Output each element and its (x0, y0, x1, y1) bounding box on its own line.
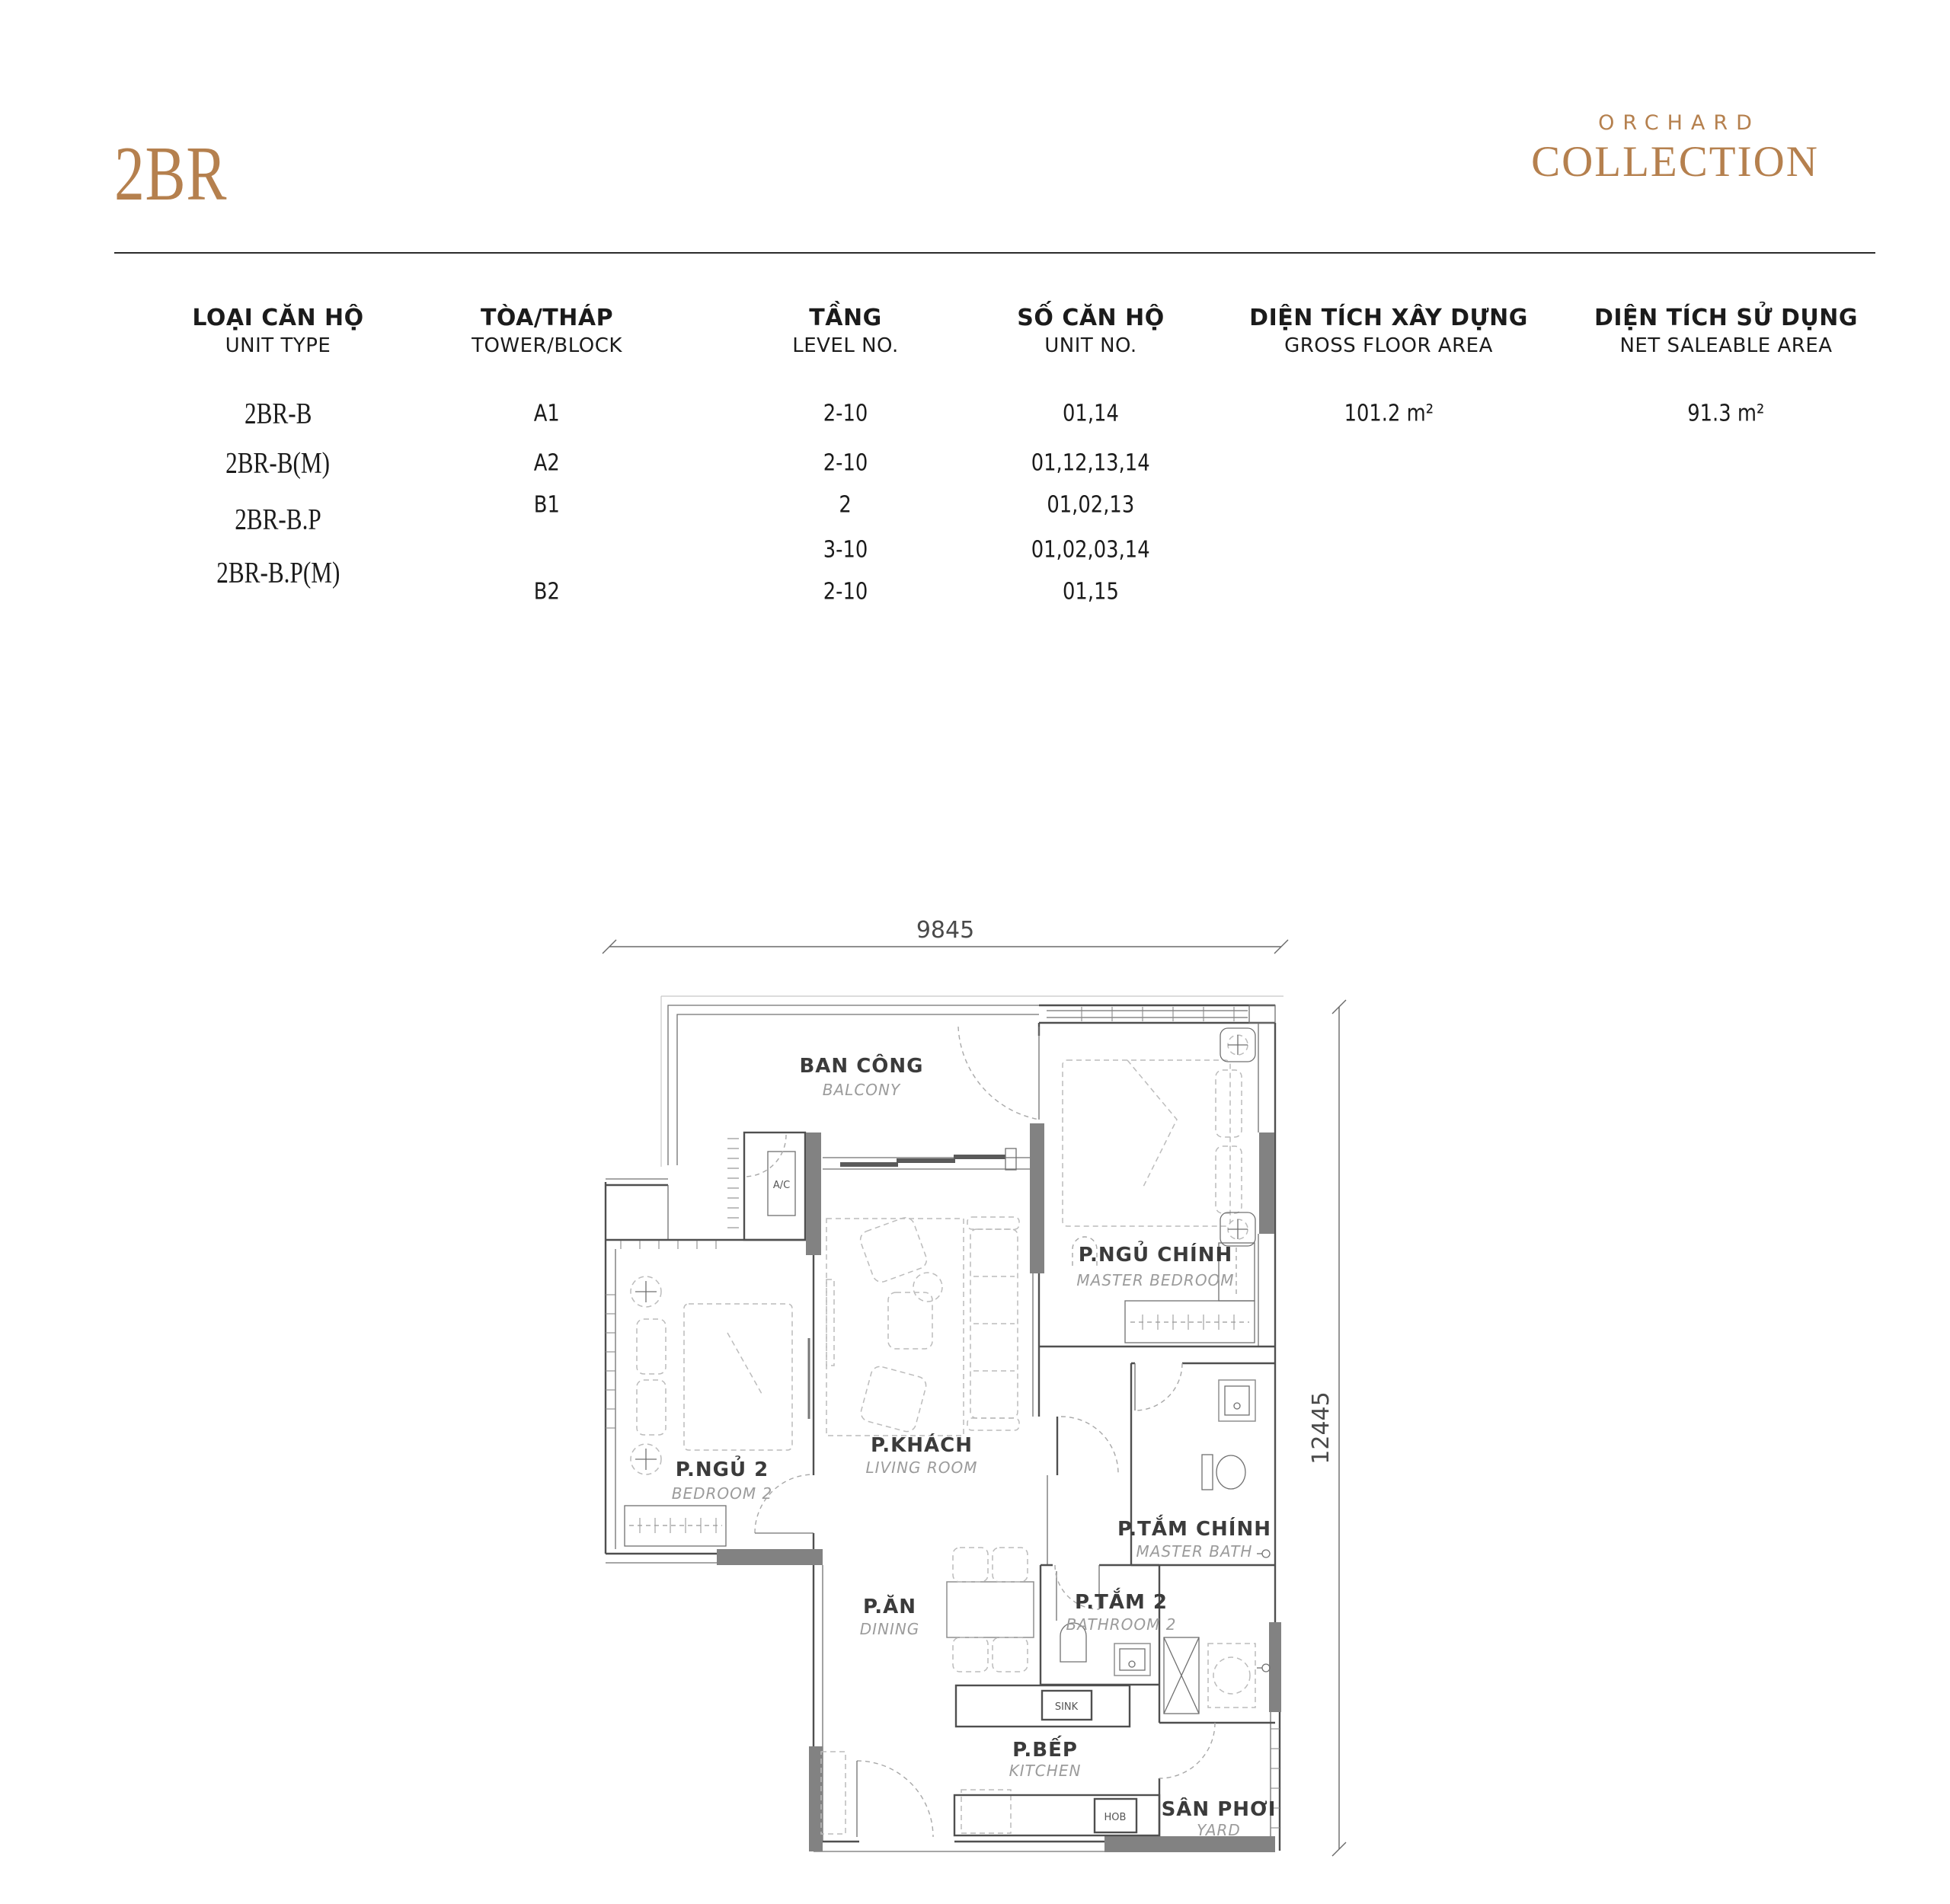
dimension-width-label: 9845 (916, 917, 974, 944)
room-living-en: LIVING ROOM (865, 1458, 977, 1477)
room-kitchen-en: KITCHEN (1009, 1762, 1082, 1780)
room-balcony-vi: BAN CÔNG (799, 1053, 923, 1078)
col-header-vi: DIỆN TÍCH XÂY DỰNG (1198, 305, 1579, 331)
hob-label: HOB (1104, 1812, 1127, 1823)
furniture (631, 1028, 1255, 1834)
room-master-bedroom-vi: P.NGỦ CHÍNH (1079, 1239, 1232, 1267)
nsa-cell: 91.3 m² (1536, 401, 1916, 427)
room-master-bath-en: MASTER BATH (1136, 1542, 1253, 1561)
brochure-page: 2BR ORCHARD COLLECTION LOẠI CĂN HỘ UNIT … (0, 0, 1950, 1904)
floor-plan: 9845 12445 (579, 899, 1371, 1896)
sink-label: SINK (1055, 1701, 1079, 1713)
room-bedroom2-vi: P.NGỦ 2 (676, 1454, 769, 1481)
room-bedroom2-en: BEDROOM 2 (672, 1484, 772, 1503)
unit-type-title: 2BR (114, 136, 227, 213)
page-title: 2BR (114, 136, 259, 213)
brand-logo: ORCHARD COLLECTION (1476, 113, 1874, 184)
ac-label: A/C (773, 1180, 790, 1191)
col-header-vi: DIỆN TÍCH SỬ DỤNG (1536, 305, 1916, 331)
table-col-nsa: DIỆN TÍCH SỬ DỤNG NET SALEABLE AREA 91.3… (1536, 305, 1916, 625)
room-labels: BAN CÔNG BALCONY P.NGỦ CHÍNH MASTER BEDR… (672, 1053, 1277, 1839)
brand-line-collection: COLLECTION (1476, 140, 1874, 184)
walls (606, 1005, 1280, 1851)
room-master-bedroom-en: MASTER BEDROOM (1076, 1271, 1234, 1289)
room-living-vi: P.KHÁCH (871, 1433, 973, 1457)
room-kitchen-vi: P.BẾP (1012, 1735, 1078, 1762)
table-col-gfa: DIỆN TÍCH XÂY DỰNG GROSS FLOOR AREA 101.… (1198, 305, 1579, 625)
col-header-en: GROSS FLOOR AREA (1198, 334, 1579, 357)
dimension-height-label: 12445 (1308, 1391, 1335, 1464)
gfa-cell: 101.2 m² (1198, 401, 1579, 427)
header-divider (114, 252, 1875, 254)
wall-fills (717, 1123, 1281, 1852)
room-balcony-en: BALCONY (823, 1081, 901, 1099)
room-dining-en: DINING (860, 1620, 920, 1638)
room-bathroom2-vi: P.TẮM 2 (1075, 1586, 1168, 1614)
room-yard-vi: SÂN PHƠI (1162, 1797, 1277, 1821)
construction-lines (661, 996, 1283, 1167)
room-yard-en: YARD (1197, 1821, 1241, 1839)
room-dining-vi: P.ĂN (863, 1594, 916, 1618)
col-header-en: NET SALEABLE AREA (1536, 334, 1916, 357)
room-master-bath-vi: P.TẮM CHÍNH (1117, 1513, 1271, 1541)
brand-line-orchard: ORCHARD (1476, 113, 1874, 133)
window-hatches (606, 1007, 1280, 1828)
room-bathroom2-en: BATHROOM 2 (1066, 1615, 1177, 1634)
